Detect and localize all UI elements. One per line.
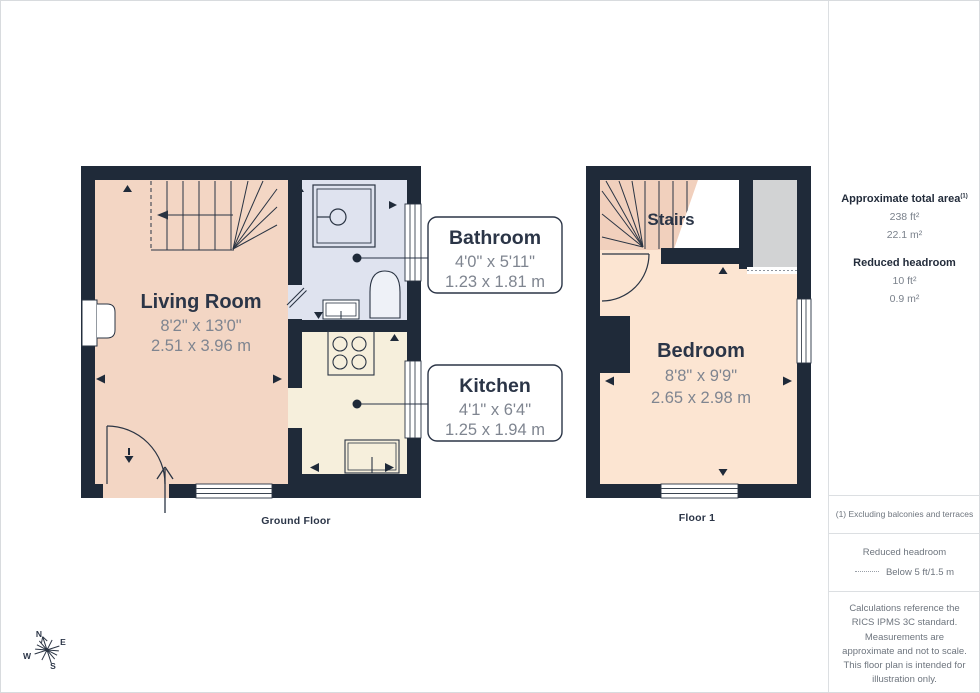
footnote-text: (1) Excluding balconies and terraces bbox=[829, 509, 980, 519]
total-area-ft: 238 ft² bbox=[829, 211, 980, 223]
first-floor-plan: Stairs Bedroom 8'8" x 9'9" 2.65 x 2.98 m… bbox=[586, 166, 811, 524]
toilet bbox=[370, 271, 400, 318]
first-floor-label: Floor 1 bbox=[679, 512, 715, 524]
reduced-headroom-heading: Reduced headroom bbox=[829, 257, 980, 269]
bathroom-sink bbox=[323, 300, 359, 319]
floor-plan-canvas: Living Room 8'2" x 13'0" 2.51 x 3.96 m G… bbox=[1, 1, 831, 693]
footnote-marker: (1) bbox=[960, 193, 967, 199]
kitchen-callout-dims-m: 1.25 x 1.94 m bbox=[445, 421, 545, 439]
kitchen-opening bbox=[288, 388, 302, 428]
chimney-breast bbox=[600, 316, 630, 373]
total-area-heading: Approximate total area(1) bbox=[829, 193, 980, 205]
floorplan-page: Living Room 8'2" x 13'0" 2.51 x 3.96 m G… bbox=[0, 0, 980, 693]
compass-rose: N E W S bbox=[23, 629, 66, 671]
kitchen-callout-dot bbox=[353, 400, 362, 409]
bathroom-callout-dot bbox=[353, 254, 362, 263]
bathroom-window bbox=[405, 204, 421, 281]
compass-north-label: N bbox=[36, 629, 42, 639]
reduced-headroom-m: 0.9 m² bbox=[829, 293, 980, 305]
total-area-heading-text: Approximate total area bbox=[841, 193, 960, 205]
ground-floor-plan: Living Room 8'2" x 13'0" 2.51 x 3.96 m G… bbox=[81, 166, 421, 527]
legend-value: Below 5 ft/1.5 m bbox=[886, 567, 954, 578]
ground-floor-label: Ground Floor bbox=[261, 515, 330, 527]
bedroom-window-right bbox=[797, 299, 811, 363]
compass-south-label: S bbox=[50, 661, 56, 671]
living-room-dims-m: 2.51 x 3.96 m bbox=[151, 337, 251, 355]
living-room-dims-ft: 8'2" x 13'0" bbox=[160, 317, 241, 335]
wall-column bbox=[739, 180, 753, 269]
reduced-headroom-area bbox=[753, 180, 797, 267]
bathroom-callout-title: Bathroom bbox=[449, 227, 541, 249]
entrance-opening bbox=[103, 484, 169, 498]
kitchen-callout-title: Kitchen bbox=[459, 375, 531, 397]
legend-section: Reduced headroom Below 5 ft/1.5 m bbox=[829, 533, 980, 591]
total-area-m: 22.1 m² bbox=[829, 229, 980, 241]
legend-heading: Reduced headroom bbox=[829, 547, 980, 558]
dotted-line-sample bbox=[855, 571, 879, 572]
compass-west-label: W bbox=[23, 651, 32, 661]
bathroom-callout-dims-ft: 4'0" x 5'11" bbox=[455, 253, 535, 271]
stairs-label: Stairs bbox=[647, 210, 694, 229]
info-sidebar: Approximate total area(1) 238 ft² 22.1 m… bbox=[828, 1, 980, 692]
legend-row: Below 5 ft/1.5 m bbox=[829, 567, 980, 578]
disclaimer-section: Calculations reference the RICS IPMS 3C … bbox=[829, 591, 980, 692]
disclaimer-text: Calculations reference the RICS IPMS 3C … bbox=[829, 592, 980, 688]
kitchen-window bbox=[405, 361, 421, 438]
footnote-section: (1) Excluding balconies and terraces bbox=[829, 495, 980, 533]
compass-east-label: E bbox=[60, 637, 66, 647]
bedroom-label: Bedroom bbox=[657, 340, 745, 362]
living-room-window bbox=[196, 484, 272, 498]
bedroom-dims-ft: 8'8" x 9'9" bbox=[665, 367, 737, 385]
stairs-wall-band bbox=[661, 248, 741, 264]
area-summary: Approximate total area(1) 238 ft² 22.1 m… bbox=[829, 193, 980, 305]
bedroom-dims-m: 2.65 x 2.98 m bbox=[651, 389, 751, 407]
bathroom-callout-dims-m: 1.23 x 1.81 m bbox=[445, 273, 545, 291]
kitchen-callout-dims-ft: 4'1" x 6'4" bbox=[459, 401, 531, 419]
bedroom-window-bottom bbox=[661, 484, 738, 498]
living-room-label: Living Room bbox=[140, 291, 261, 313]
reduced-headroom-ft: 10 ft² bbox=[829, 275, 980, 287]
